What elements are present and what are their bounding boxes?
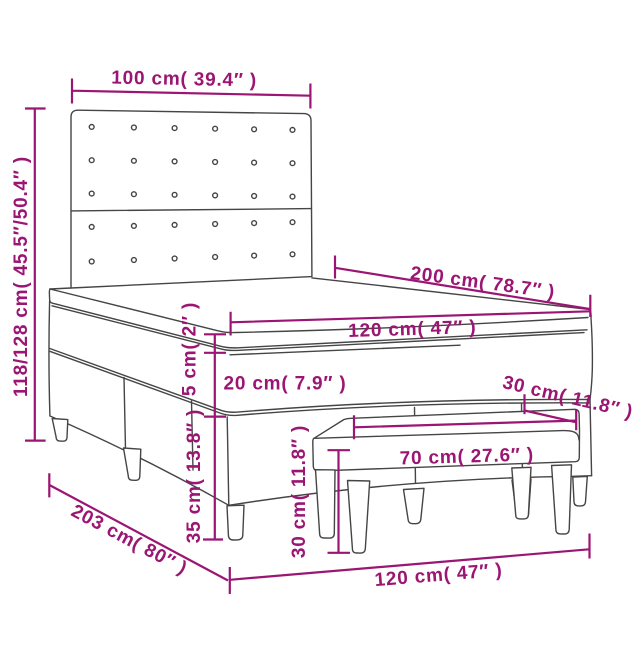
- svg-text:70 cm( 27.6″ ): 70 cm( 27.6″ ): [399, 445, 534, 470]
- svg-text:100 cm( 39.4″ ): 100 cm( 39.4″ ): [111, 67, 257, 91]
- svg-text:120 cm( 47″ ): 120 cm( 47″ ): [348, 317, 477, 342]
- svg-text:118/128 cm( 45.5″/50.4″ ): 118/128 cm( 45.5″/50.4″ ): [11, 156, 32, 397]
- svg-text:5 cm( 2″ ): 5 cm( 2″ ): [180, 302, 201, 396]
- svg-text:35 cm( 13.8″ ): 35 cm( 13.8″ ): [184, 409, 205, 543]
- svg-text:30 cm( 11.8″ ): 30 cm( 11.8″ ): [289, 425, 310, 558]
- svg-text:20 cm( 7.9″ ): 20 cm( 7.9″ ): [224, 374, 347, 395]
